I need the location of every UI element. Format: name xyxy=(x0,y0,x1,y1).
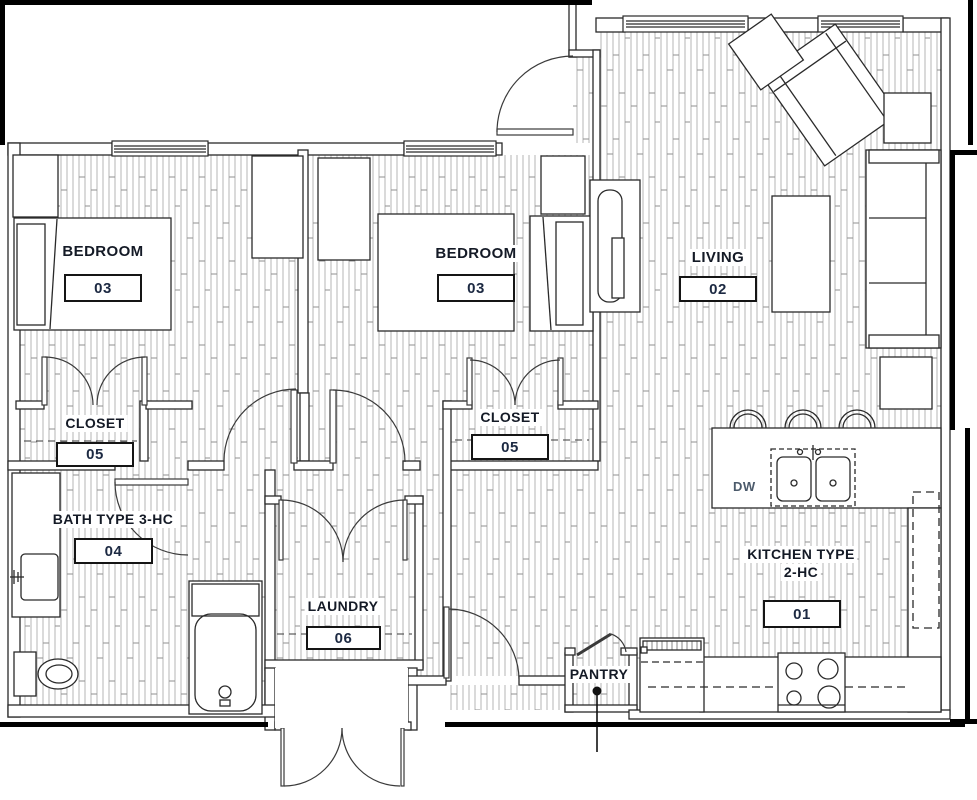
closet-1-name: CLOSET xyxy=(62,415,127,432)
bath-number: 04 xyxy=(74,538,153,564)
wall xyxy=(569,0,576,57)
refrigerator xyxy=(640,638,704,712)
context-wall-bottom-left xyxy=(0,722,268,727)
door-main-entry-double xyxy=(281,728,404,786)
dishwasher-label: DW xyxy=(733,479,756,494)
bedroom-2-name: BEDROOM xyxy=(432,245,519,262)
dresser xyxy=(252,156,303,258)
wall xyxy=(146,401,192,409)
wall xyxy=(8,143,112,155)
kitchen-number: 01 xyxy=(763,600,841,628)
side-table xyxy=(884,93,931,143)
context-wall-right-top xyxy=(968,0,973,145)
context-wall-bottom-right xyxy=(445,722,965,727)
floor-entry-nook xyxy=(573,57,593,143)
nightstand xyxy=(13,155,58,217)
wall xyxy=(140,401,148,461)
floor-kitchen-access xyxy=(448,470,598,676)
context-wall xyxy=(965,428,970,723)
context-wall xyxy=(950,150,977,155)
laundry-number: 06 xyxy=(306,626,381,650)
living-number: 02 xyxy=(679,276,757,302)
vanity-sink xyxy=(10,473,60,617)
floor-plan: BEDROOM 03 BEDROOM 03 LIVING 02 CLOSET 0… xyxy=(0,0,977,800)
closet-2-name: CLOSET xyxy=(477,409,542,426)
wall xyxy=(16,401,44,409)
dresser xyxy=(318,158,370,260)
bath-name: BATH TYPE 3-HC xyxy=(50,511,176,528)
wall xyxy=(408,676,446,685)
context-wall-left xyxy=(0,0,5,145)
wall xyxy=(565,705,637,712)
wall xyxy=(415,496,423,668)
kitchen-name-line1: KITCHEN TYPE xyxy=(744,546,857,563)
living-name: LIVING xyxy=(689,249,747,266)
laundry-name: LAUNDRY xyxy=(305,598,382,615)
sofa xyxy=(866,150,941,348)
wall xyxy=(265,668,275,730)
closet-2-number: 05 xyxy=(471,434,549,460)
wall xyxy=(403,461,420,470)
bedroom-2-number: 03 xyxy=(437,274,515,302)
closet-1-number: 05 xyxy=(56,442,134,467)
wall xyxy=(565,648,575,655)
door-unit-entry-top xyxy=(497,56,573,135)
entry-vestibule xyxy=(275,668,408,728)
wall xyxy=(558,401,598,409)
coffee-table xyxy=(772,196,830,312)
tv-console xyxy=(590,180,640,312)
wall xyxy=(300,393,309,461)
bathtub xyxy=(189,581,262,714)
window-living-left xyxy=(623,16,748,32)
kitchen-name-line2: 2-HC xyxy=(781,564,821,581)
pantry-name: PANTRY xyxy=(567,666,631,683)
wall xyxy=(294,461,333,470)
wall xyxy=(519,676,569,685)
wall xyxy=(621,648,637,655)
range-stove xyxy=(778,653,845,712)
bedroom-1-number: 03 xyxy=(64,274,142,302)
wall xyxy=(941,18,950,715)
context-wall-top xyxy=(0,0,592,5)
wall xyxy=(405,496,423,504)
nightstand xyxy=(541,156,585,214)
window-bedroom-2 xyxy=(404,141,496,156)
plan-drawing xyxy=(0,0,977,800)
wall xyxy=(596,18,625,32)
end-table xyxy=(880,357,932,409)
label-plate xyxy=(378,214,514,331)
bed xyxy=(530,216,593,331)
bedroom-1-name: BEDROOM xyxy=(59,243,146,260)
wall xyxy=(448,461,598,470)
wall xyxy=(496,143,502,155)
wall xyxy=(188,461,224,470)
window-bedroom-1 xyxy=(112,141,208,156)
context-wall xyxy=(950,155,955,430)
floor-pantry-access xyxy=(450,685,568,710)
